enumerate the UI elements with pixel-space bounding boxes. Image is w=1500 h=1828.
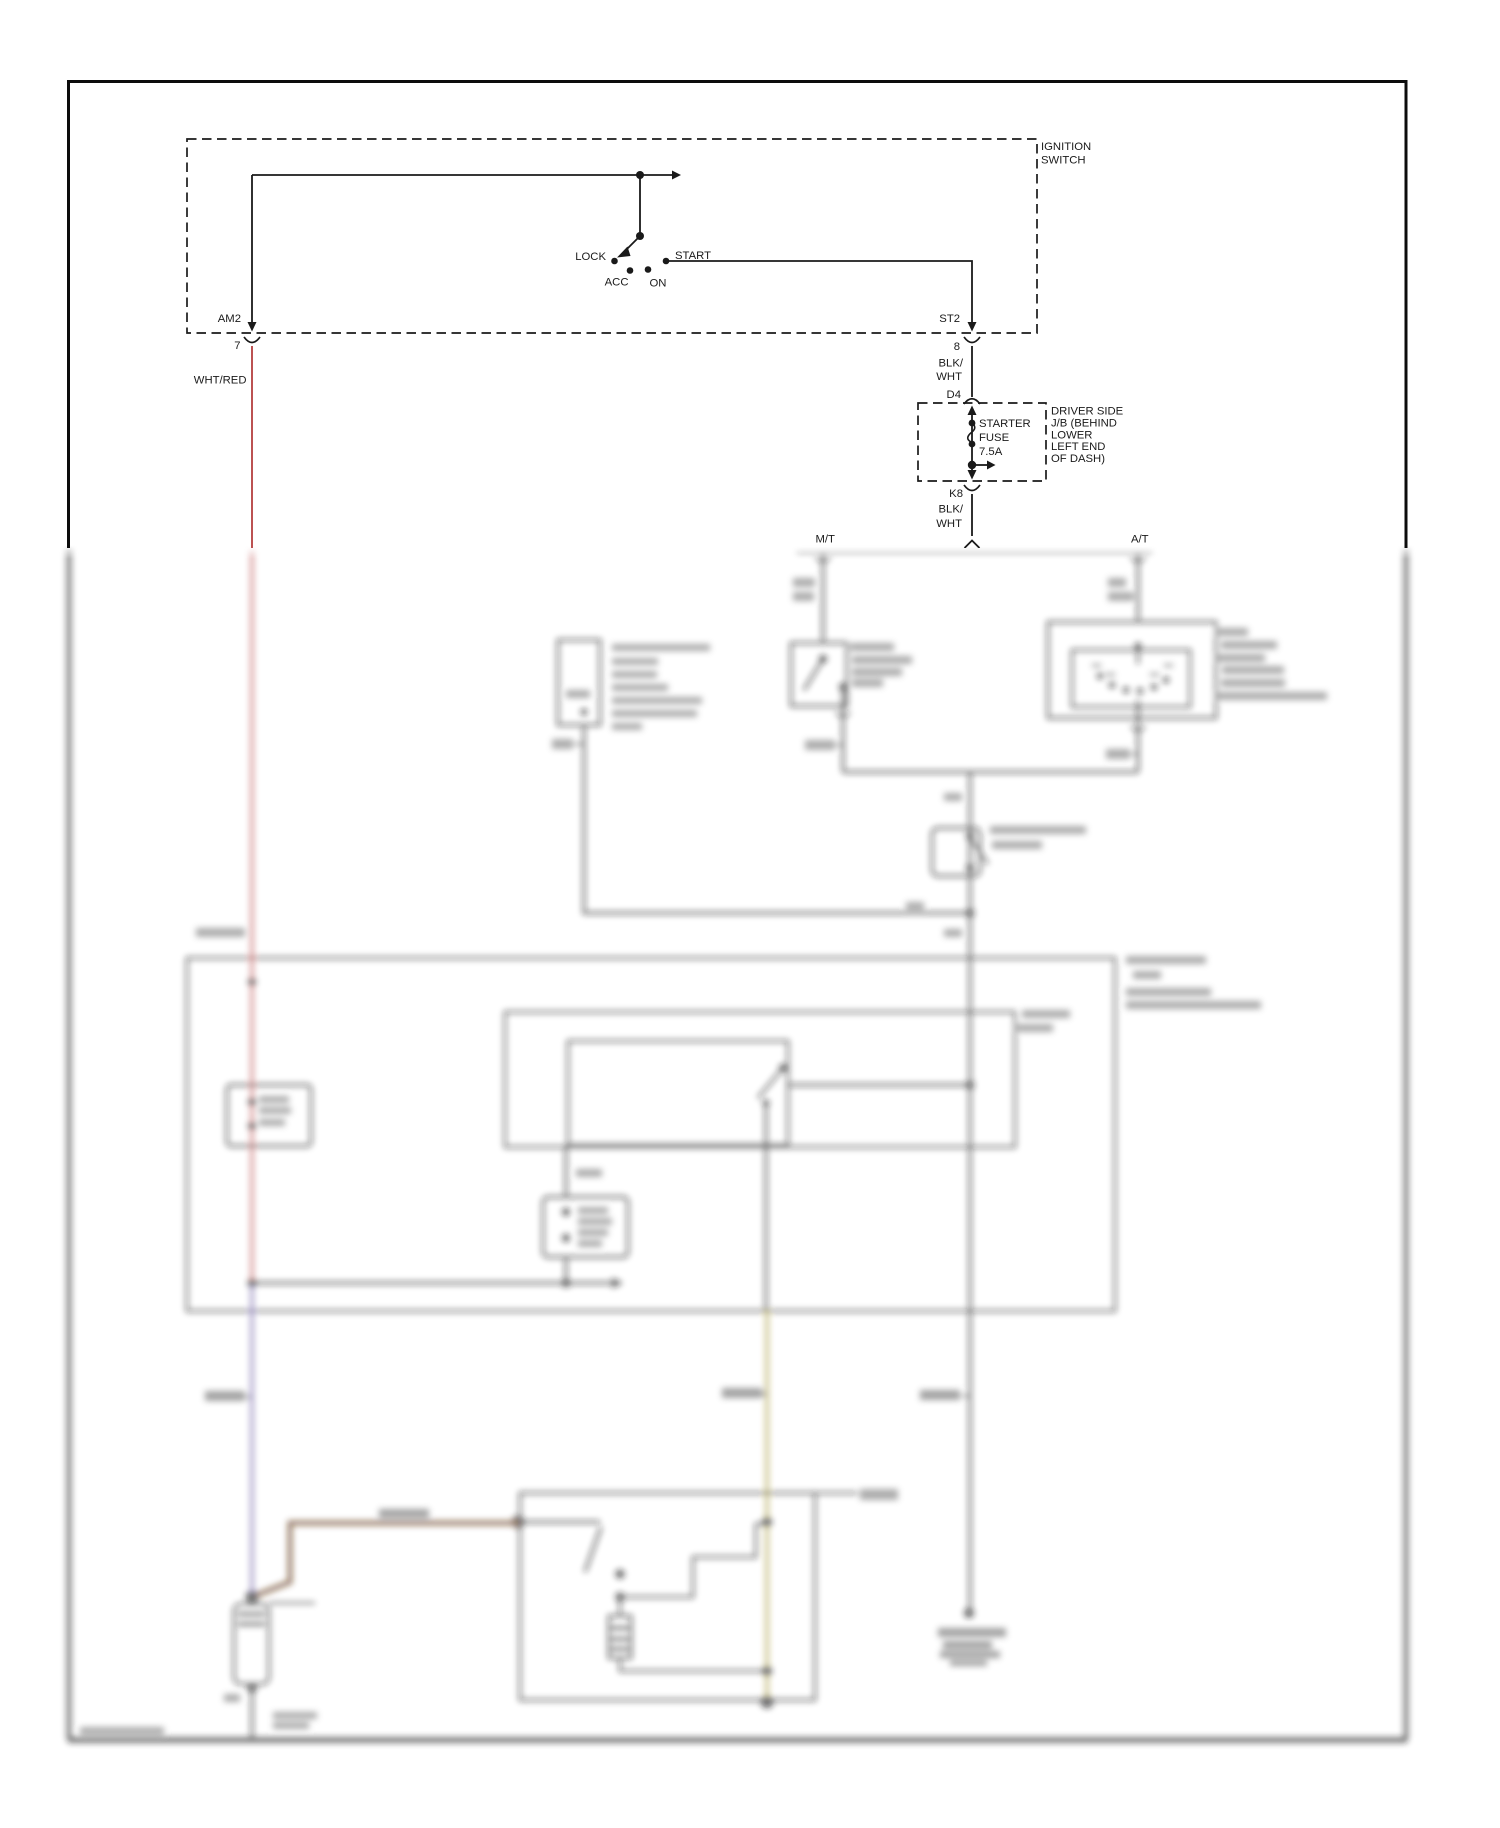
svg-text:WHT: WHT: [936, 518, 962, 530]
svg-text:WHT/RED: WHT/RED: [194, 375, 247, 387]
svg-text:LEFT END: LEFT END: [1051, 441, 1105, 453]
svg-text:M/T: M/T: [816, 534, 836, 546]
svg-text:7.5A: 7.5A: [979, 446, 1003, 458]
svg-text:ON: ON: [650, 278, 667, 290]
svg-text:AM2: AM2: [218, 313, 241, 325]
svg-text:STARTER: STARTER: [979, 418, 1031, 430]
svg-text:WHT: WHT: [936, 371, 962, 383]
svg-text:7: 7: [234, 340, 240, 352]
svg-text:J/B (BEHIND: J/B (BEHIND: [1051, 418, 1117, 430]
svg-text:FUSE: FUSE: [979, 432, 1010, 444]
svg-text:BLK/: BLK/: [939, 358, 964, 370]
svg-text:DRIVER SIDE: DRIVER SIDE: [1051, 406, 1124, 418]
svg-text:8: 8: [954, 341, 960, 353]
svg-text:D4: D4: [947, 389, 961, 401]
svg-text:A/T: A/T: [1131, 534, 1149, 546]
svg-text:BLK/: BLK/: [939, 503, 964, 515]
svg-text:IGNITION: IGNITION: [1041, 141, 1091, 153]
svg-text:START: START: [675, 250, 711, 262]
svg-text:OF DASH): OF DASH): [1051, 453, 1105, 465]
svg-text:SWITCH: SWITCH: [1041, 154, 1086, 166]
svg-text:ACC: ACC: [605, 277, 629, 289]
svg-text:ST2: ST2: [939, 313, 960, 325]
svg-text:LOWER: LOWER: [1051, 429, 1092, 441]
svg-text:K8: K8: [949, 488, 963, 500]
svg-text:LOCK: LOCK: [575, 251, 606, 263]
